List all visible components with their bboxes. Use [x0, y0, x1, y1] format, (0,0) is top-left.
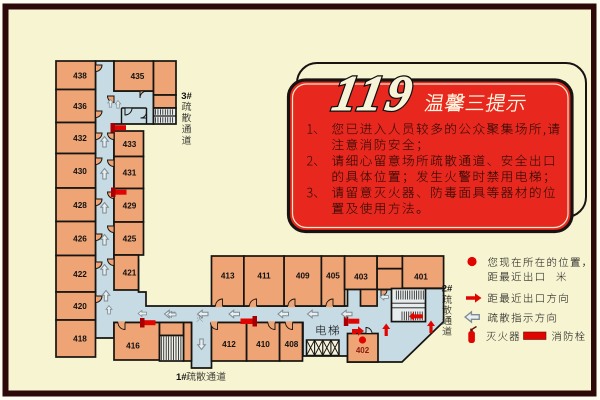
- svg-text:403: 403: [354, 273, 368, 282]
- svg-text:408: 408: [285, 340, 299, 349]
- svg-text:2#: 2#: [442, 284, 453, 295]
- svg-text:425: 425: [123, 235, 137, 244]
- svg-text:420: 420: [73, 302, 87, 311]
- svg-text:412: 412: [222, 340, 236, 349]
- svg-text:410: 410: [256, 340, 270, 349]
- svg-text:418: 418: [73, 335, 87, 344]
- svg-text:432: 432: [73, 134, 87, 143]
- svg-text:1#: 1#: [176, 372, 187, 383]
- svg-text:402: 402: [356, 346, 370, 355]
- svg-text:119: 119: [328, 65, 419, 121]
- svg-text:428: 428: [73, 201, 87, 210]
- svg-text:3#: 3#: [181, 91, 192, 102]
- svg-text:431: 431: [123, 169, 137, 178]
- svg-text:430: 430: [73, 167, 87, 176]
- svg-text:413: 413: [221, 272, 235, 281]
- svg-text:421: 421: [123, 269, 137, 278]
- svg-text:401: 401: [414, 273, 428, 282]
- svg-text:426: 426: [73, 235, 87, 244]
- svg-text:436: 436: [73, 102, 87, 111]
- svg-text:433: 433: [123, 140, 137, 149]
- svg-text:438: 438: [73, 71, 87, 80]
- svg-text:422: 422: [73, 270, 87, 279]
- svg-text:416: 416: [126, 342, 140, 351]
- svg-text:429: 429: [123, 201, 137, 210]
- svg-text:435: 435: [131, 72, 145, 81]
- svg-text:405: 405: [326, 272, 340, 281]
- svg-text:409: 409: [296, 272, 310, 281]
- svg-text:411: 411: [257, 272, 271, 281]
